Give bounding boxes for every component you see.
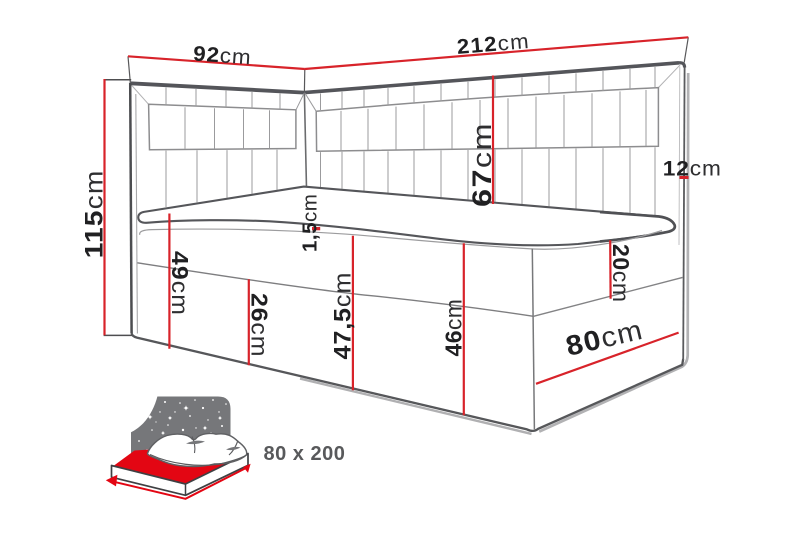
svg-text:20cm: 20cm (608, 244, 634, 303)
svg-text:80 x 200: 80 x 200 (264, 443, 346, 465)
svg-text:46cm: 46cm (441, 299, 467, 357)
svg-text:1,5cm: 1,5cm (299, 194, 322, 252)
svg-text:67cm: 67cm (468, 122, 498, 207)
svg-text:115cm: 115cm (80, 169, 108, 258)
svg-text:47,5cm: 47,5cm (330, 272, 356, 360)
svg-text:92cm: 92cm (192, 41, 252, 69)
svg-text:12cm: 12cm (663, 156, 722, 180)
svg-text:49cm: 49cm (166, 251, 192, 316)
svg-text:26cm: 26cm (246, 293, 272, 357)
